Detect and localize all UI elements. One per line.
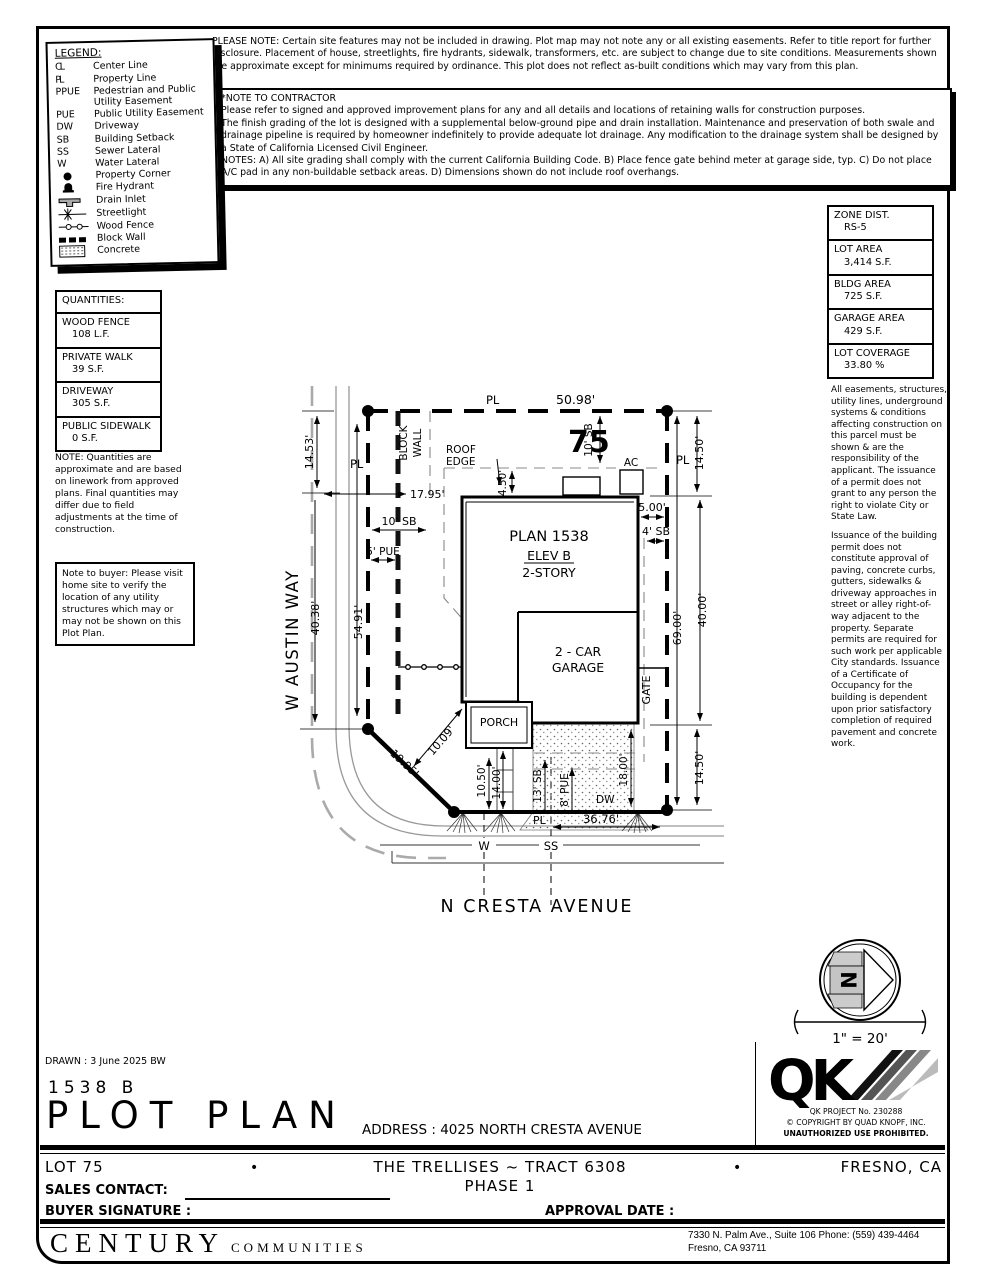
plan-line3: 2-STORY	[522, 565, 576, 580]
ppue-symbol: PPUE	[55, 86, 93, 98]
plot-plan-sheet: 75 PL 50.98' PL PL PL 14.53' BLOCK WALL …	[0, 0, 985, 1276]
pl-label-left: PL	[350, 457, 364, 471]
dim-sb10-top: 10' SB	[583, 423, 595, 456]
quantities-title: QUANTITIES:	[57, 292, 160, 312]
wood-fence-icon	[59, 222, 89, 232]
sheet-title: PLOT PLAN	[46, 1094, 347, 1137]
plan-line1: PLAN 1538	[509, 529, 588, 545]
street-bottom-label: N CRESTA AVENUE	[441, 897, 634, 917]
zoning-table: ZONE DIST.RS-5 LOT AREA3,414 S.F. BLDG A…	[827, 205, 934, 379]
block-wall-label-1: BLOCK	[398, 424, 410, 460]
dim-sb4: 4' SB	[642, 525, 670, 538]
footer-city: FRESNO, CA	[812, 1158, 942, 1176]
garage-line2: GARAGE	[552, 660, 604, 675]
water-lateral-label: W	[478, 839, 489, 853]
legend-item-ppue: PPUE Pedestrian and Public Utility Easem…	[55, 83, 208, 109]
concrete-icon	[59, 245, 85, 258]
title-rule-upper	[40, 1145, 945, 1154]
quantities-note: NOTE: Quantities are approximate and are…	[55, 452, 183, 536]
dim-left-pl: 54.91'	[352, 605, 365, 640]
please-note-text: PLEASE NOTE: Certain site features may n…	[212, 36, 948, 73]
permit-note: Issuance of the building permit does not…	[831, 531, 947, 751]
w-symbol: W	[57, 158, 95, 170]
quantity-row-wood-fence: WOOD FENCE108 L.F.	[57, 312, 160, 346]
easements-note: All easements, structures, utility lines…	[831, 385, 947, 524]
legend-title: LEGEND:	[55, 44, 208, 60]
site-address: ADDRESS : 4025 NORTH CRESTA AVENUE	[362, 1122, 642, 1138]
footer-lot: LOT 75	[45, 1158, 104, 1176]
drawn-date: DRAWN : 3 June 2025 BW	[45, 1056, 166, 1067]
buyer-signature-label: BUYER SIGNATURE :	[45, 1204, 191, 1219]
qk-letters: QK	[768, 1049, 857, 1114]
roof-edge-label-1: ROOF	[446, 444, 476, 456]
streetlight-icon	[58, 208, 86, 221]
dim-450: 4.50'	[497, 470, 509, 496]
note-to-buyer-box: Note to buyer: Please visit home site to…	[55, 562, 195, 646]
qk-project-number: QK PROJECT No. 230288	[766, 1106, 946, 1117]
pl-label-bottom: PL	[533, 814, 547, 827]
approval-date-label: APPROVAL DATE :	[545, 1204, 674, 1219]
north-letter: N	[836, 971, 860, 989]
pl-label-top: PL	[486, 393, 500, 407]
house-outline	[462, 470, 643, 748]
dim-3676: 36.76'	[583, 812, 619, 826]
zone-row-lot-area: LOT AREA3,414 S.F.	[829, 239, 932, 273]
gate-label: GATE	[640, 676, 653, 705]
sb-symbol: SB	[57, 133, 95, 145]
dim-pue5: 5' PUE	[366, 546, 400, 558]
sewer-lateral-label: SS	[544, 839, 559, 853]
dim-left-top: 14.53'	[303, 435, 316, 470]
block-wall-label-2: WALL	[412, 429, 424, 458]
dim-pue8: 8' PUE	[559, 773, 571, 807]
legend-item-concrete: Concrete	[59, 242, 212, 257]
dim-sb13: 13' SB	[532, 769, 544, 802]
dim-right-mid: 40.00'	[696, 593, 709, 628]
builder-logo: CENTURYCOMMUNITIES	[50, 1228, 367, 1259]
footer-bullet-1: •	[250, 1160, 258, 1176]
qk-rights: UNAUTHORIZED USE PROHIBITED.	[766, 1128, 946, 1139]
qk-copyright: © COPYRIGHT BY QUAD KNOPF, INC.	[766, 1117, 946, 1128]
ac-label: AC	[624, 457, 638, 469]
title-rule-lower	[40, 1219, 945, 1228]
dim-diag: 10.09'	[425, 723, 457, 758]
builder-address-line2: Fresno, CA 93711	[688, 1242, 944, 1255]
zone-row-lot-coverage: LOT COVERAGE33.80 %	[829, 343, 932, 377]
dim-sb10-side: 10' SB	[381, 515, 416, 528]
contractor-note-p3: NOTES: A) All site grading shall comply …	[221, 155, 943, 180]
dim-right-total: 69.00'	[671, 611, 684, 646]
dim-right-bottom: 14.50'	[693, 751, 706, 786]
quantities-table: QUANTITIES: WOOD FENCE108 L.F. PRIVATE W…	[55, 290, 162, 452]
dim-left-street: 40.38'	[309, 601, 322, 636]
dim-1800: 18.00'	[618, 754, 630, 787]
dim-1400: 14.00'	[491, 767, 503, 800]
dim-1050: 10.50'	[476, 765, 488, 798]
contractor-note-title: *NOTE TO CONTRACTOR	[221, 93, 943, 105]
center-line-symbol: CL	[55, 61, 93, 73]
zone-row-district: ZONE DIST.RS-5	[829, 207, 932, 239]
contractor-note-p1: Please refer to signed and approved impr…	[221, 105, 943, 117]
builder-contact: 7330 N. Palm Ave., Suite 106 Phone: (559…	[688, 1229, 944, 1255]
quantity-row-private-walk: PRIVATE WALK39 S.F.	[57, 347, 160, 381]
dw-symbol: DW	[56, 121, 94, 133]
zone-row-bldg-area: BLDG AREA725 S.F.	[829, 274, 932, 308]
qk-credits: QK PROJECT No. 230288 © COPYRIGHT BY QUA…	[766, 1106, 946, 1139]
porch-label: PORCH	[480, 716, 518, 729]
builder-name: CENTURY	[50, 1228, 225, 1258]
dw-label: DW	[596, 794, 615, 806]
builder-address-line1: 7330 N. Palm Ave., Suite 106 Phone: (559…	[688, 1229, 944, 1242]
quantity-row-driveway: DRIVEWAY305 S.F.	[57, 381, 160, 415]
street-left-label: W AUSTIN WAY	[283, 569, 302, 710]
sales-contact-label: SALES CONTACT:	[45, 1183, 168, 1198]
dim-500: 5.00'	[638, 501, 666, 514]
property-corner-dot	[63, 172, 71, 180]
qk-divider	[755, 1042, 756, 1146]
zone-row-garage-area: GARAGE AREA429 S.F.	[829, 308, 932, 342]
pue-symbol: PUE	[56, 109, 94, 121]
builder-name-2: COMMUNITIES	[231, 1240, 367, 1255]
ac-unit	[620, 470, 643, 494]
legend-box: LEGEND: CL Center Line PL Property Line …	[45, 38, 219, 267]
quantity-row-public-sidewalk: PUBLIC SIDEWALK0 S.F.	[57, 416, 160, 450]
block-wall-icon	[59, 237, 86, 243]
roof-edge-label-2: EDGE	[446, 456, 476, 468]
fire-hydrant-icon	[62, 183, 75, 194]
dim-1795: 17.95'	[410, 488, 445, 501]
scale-label: 1" = 20'	[832, 1031, 888, 1047]
plan-line2: ELEV B	[527, 548, 571, 563]
qk-logo: QK	[768, 1049, 938, 1114]
pl-label-right: PL	[676, 453, 690, 467]
sales-contact-line	[185, 1184, 390, 1200]
property-line-symbol: PL	[55, 73, 93, 85]
wood-fence-line	[398, 665, 462, 670]
zoning-notes: All easements, structures, utility lines…	[831, 385, 947, 751]
ss-symbol: SS	[57, 146, 95, 158]
north-arrow: N	[820, 940, 900, 1020]
drain-inlet-icon	[58, 195, 82, 208]
dim-right-top: 14.50'	[693, 436, 706, 471]
garage-line1: 2 - CAR	[555, 644, 602, 659]
dim-top: 50.98'	[556, 392, 595, 407]
note-to-contractor-box: *NOTE TO CONTRACTOR Please refer to sign…	[212, 88, 952, 187]
contractor-note-p2: The finish grading of the lot is designe…	[221, 118, 943, 155]
footer-bullet-2: •	[733, 1160, 741, 1176]
